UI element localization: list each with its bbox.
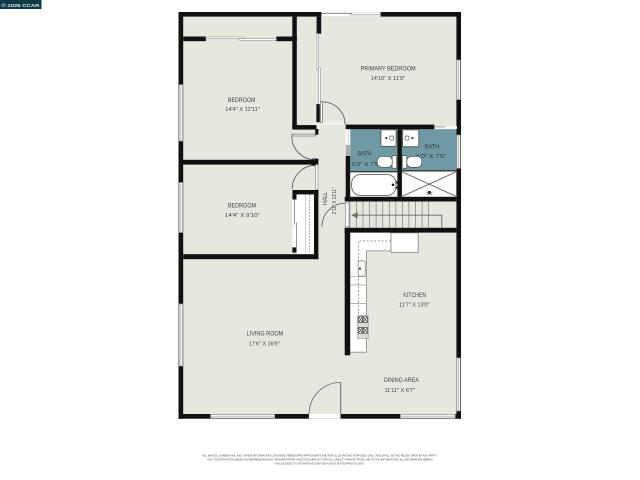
svg-text:14'4" X 9'10": 14'4" X 9'10" [225, 213, 260, 219]
svg-text:BATH: BATH [425, 144, 440, 151]
svg-text:BEDROOM: BEDROOM [228, 203, 256, 210]
svg-text:LIVING ROOM: LIVING ROOM [247, 331, 284, 338]
svg-text:SHALL BE SUBJECT TO THE TERMS: SHALL BE SUBJECT TO THE TERMS AND CONDIT… [275, 462, 365, 466]
svg-text:11'7" X 13'0": 11'7" X 13'0" [399, 302, 429, 308]
svg-text:© 2025 CCAR: © 2025 CCAR [1, 2, 40, 9]
svg-text:17'6" X 16'9": 17'6" X 16'9" [249, 341, 280, 347]
svg-text:11'11" X 6'7": 11'11" X 6'7" [384, 388, 415, 394]
svg-text:BATH: BATH [358, 151, 372, 158]
svg-text:14'10" X 11'9": 14'10" X 11'9" [371, 76, 405, 82]
svg-text:PRIMARY BEDROOM: PRIMARY BEDROOM [361, 66, 416, 73]
svg-text:2'11" X 13'11": 2'11" X 13'11" [332, 187, 338, 214]
svg-text:5'3" X 7'5": 5'3" X 7'5" [352, 162, 380, 168]
svg-text:HALL: HALL [322, 191, 329, 205]
svg-text:KITCHEN: KITCHEN [403, 292, 426, 299]
svg-text:BEDROOM: BEDROOM [228, 97, 256, 104]
svg-text:14'4" X 12'11": 14'4" X 12'11" [225, 107, 259, 113]
svg-text:DINING AREA: DINING AREA [384, 377, 419, 384]
